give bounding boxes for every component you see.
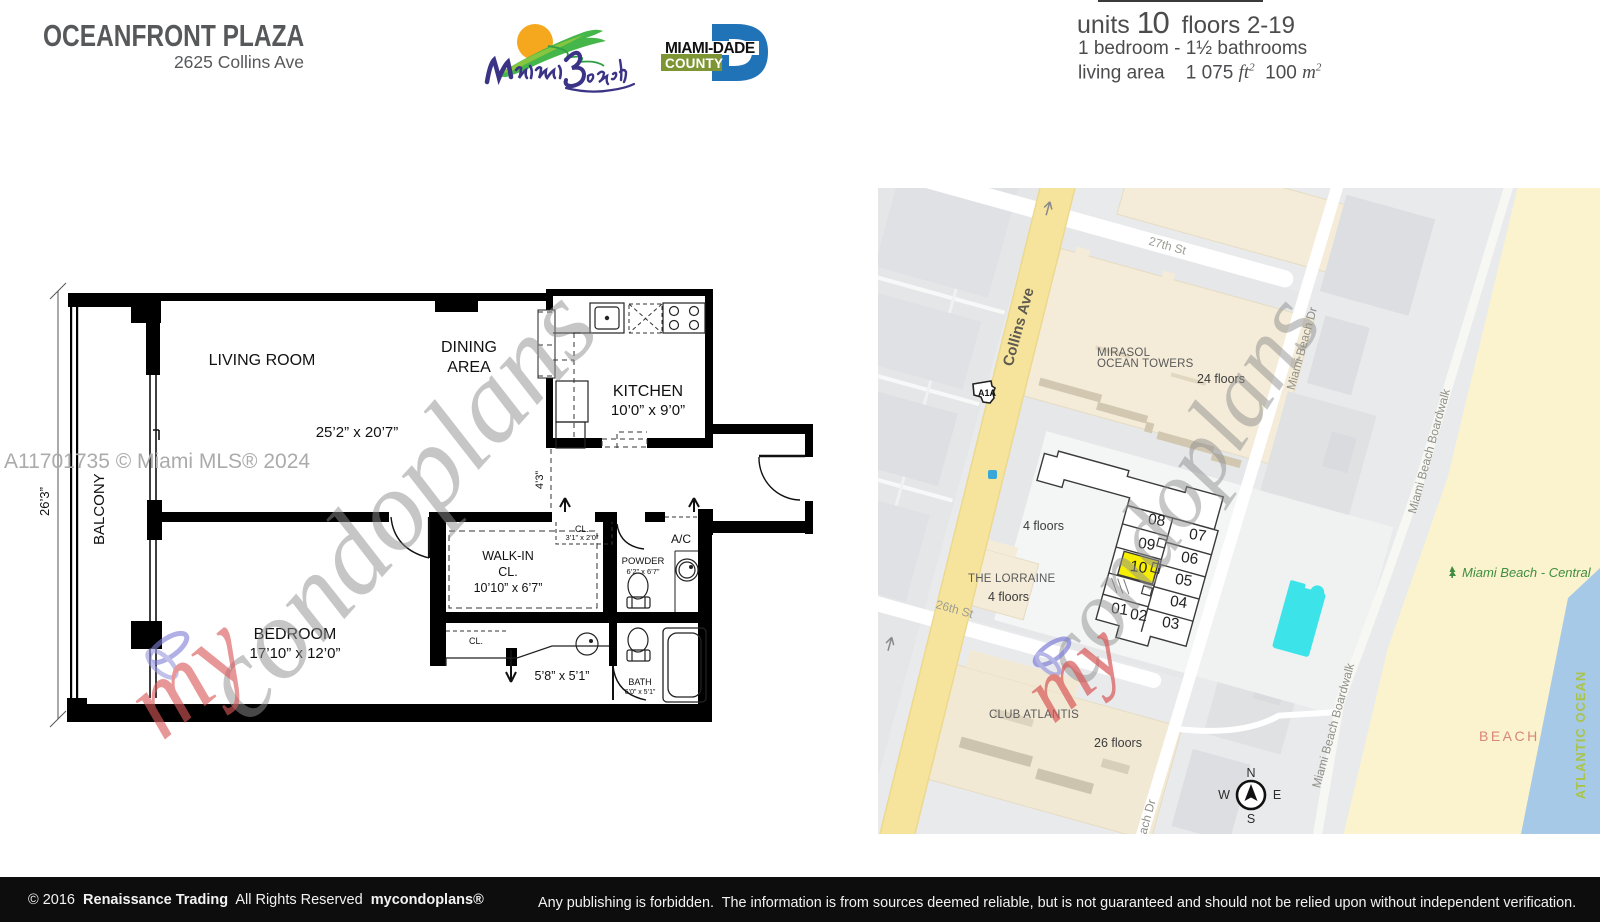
svg-text:KITCHEN: KITCHEN <box>613 383 683 400</box>
svg-text:W: W <box>1218 788 1230 802</box>
svg-text:03: 03 <box>1161 614 1180 633</box>
svg-text:26 floors: 26 floors <box>1094 736 1142 750</box>
svg-text:A1A: A1A <box>978 388 997 398</box>
svg-text:CL.: CL. <box>469 636 483 646</box>
svg-text:4 floors: 4 floors <box>988 590 1029 604</box>
svg-text:OCEAN TOWERS: OCEAN TOWERS <box>1097 358 1194 370</box>
svg-text:Miami Beach - Central: Miami Beach - Central <box>1462 565 1592 580</box>
svg-text:BATH: BATH <box>628 677 651 687</box>
svg-text:5’8” x 5’1”: 5’8” x 5’1” <box>535 669 590 683</box>
svg-text:ATLANTIC OCEAN: ATLANTIC OCEAN <box>1573 671 1588 800</box>
svg-text:A11701735 © Miami MLS® 2024: A11701735 © Miami MLS® 2024 <box>4 450 310 473</box>
svg-text:POWDER: POWDER <box>622 556 665 567</box>
svg-text:BEACH: BEACH <box>1479 728 1540 744</box>
svg-text:10’0” x 9’0”: 10’0” x 9’0” <box>611 402 685 419</box>
svg-text:E: E <box>1273 788 1281 802</box>
svg-text:3’1” x 2’0”: 3’1” x 2’0” <box>566 533 599 542</box>
svg-text:4’3”: 4’3” <box>534 470 546 489</box>
svg-text:N: N <box>1246 766 1255 780</box>
svg-text:CL.: CL. <box>498 565 517 579</box>
svg-text:04: 04 <box>1169 593 1189 612</box>
svg-text:6’2” x 6’7”: 6’2” x 6’7” <box>627 567 660 576</box>
svg-text:BALCONY: BALCONY <box>91 473 108 545</box>
svg-text:4 floors: 4 floors <box>1023 519 1064 533</box>
svg-text:26’3”: 26’3” <box>37 487 52 516</box>
svg-text:S: S <box>1247 812 1255 826</box>
svg-text:WALK-IN: WALK-IN <box>482 549 534 563</box>
svg-text:COUNTY: COUNTY <box>665 56 723 71</box>
svg-text:10’10” x 6’7”: 10’10” x 6’7” <box>474 581 543 595</box>
svg-text:6’0” x 5’1”: 6’0” x 5’1” <box>625 689 656 696</box>
svg-text:LIVING ROOM: LIVING ROOM <box>209 352 316 369</box>
svg-text:A/C: A/C <box>671 532 691 546</box>
svg-text:THE LORRAINE: THE LORRAINE <box>968 573 1056 585</box>
